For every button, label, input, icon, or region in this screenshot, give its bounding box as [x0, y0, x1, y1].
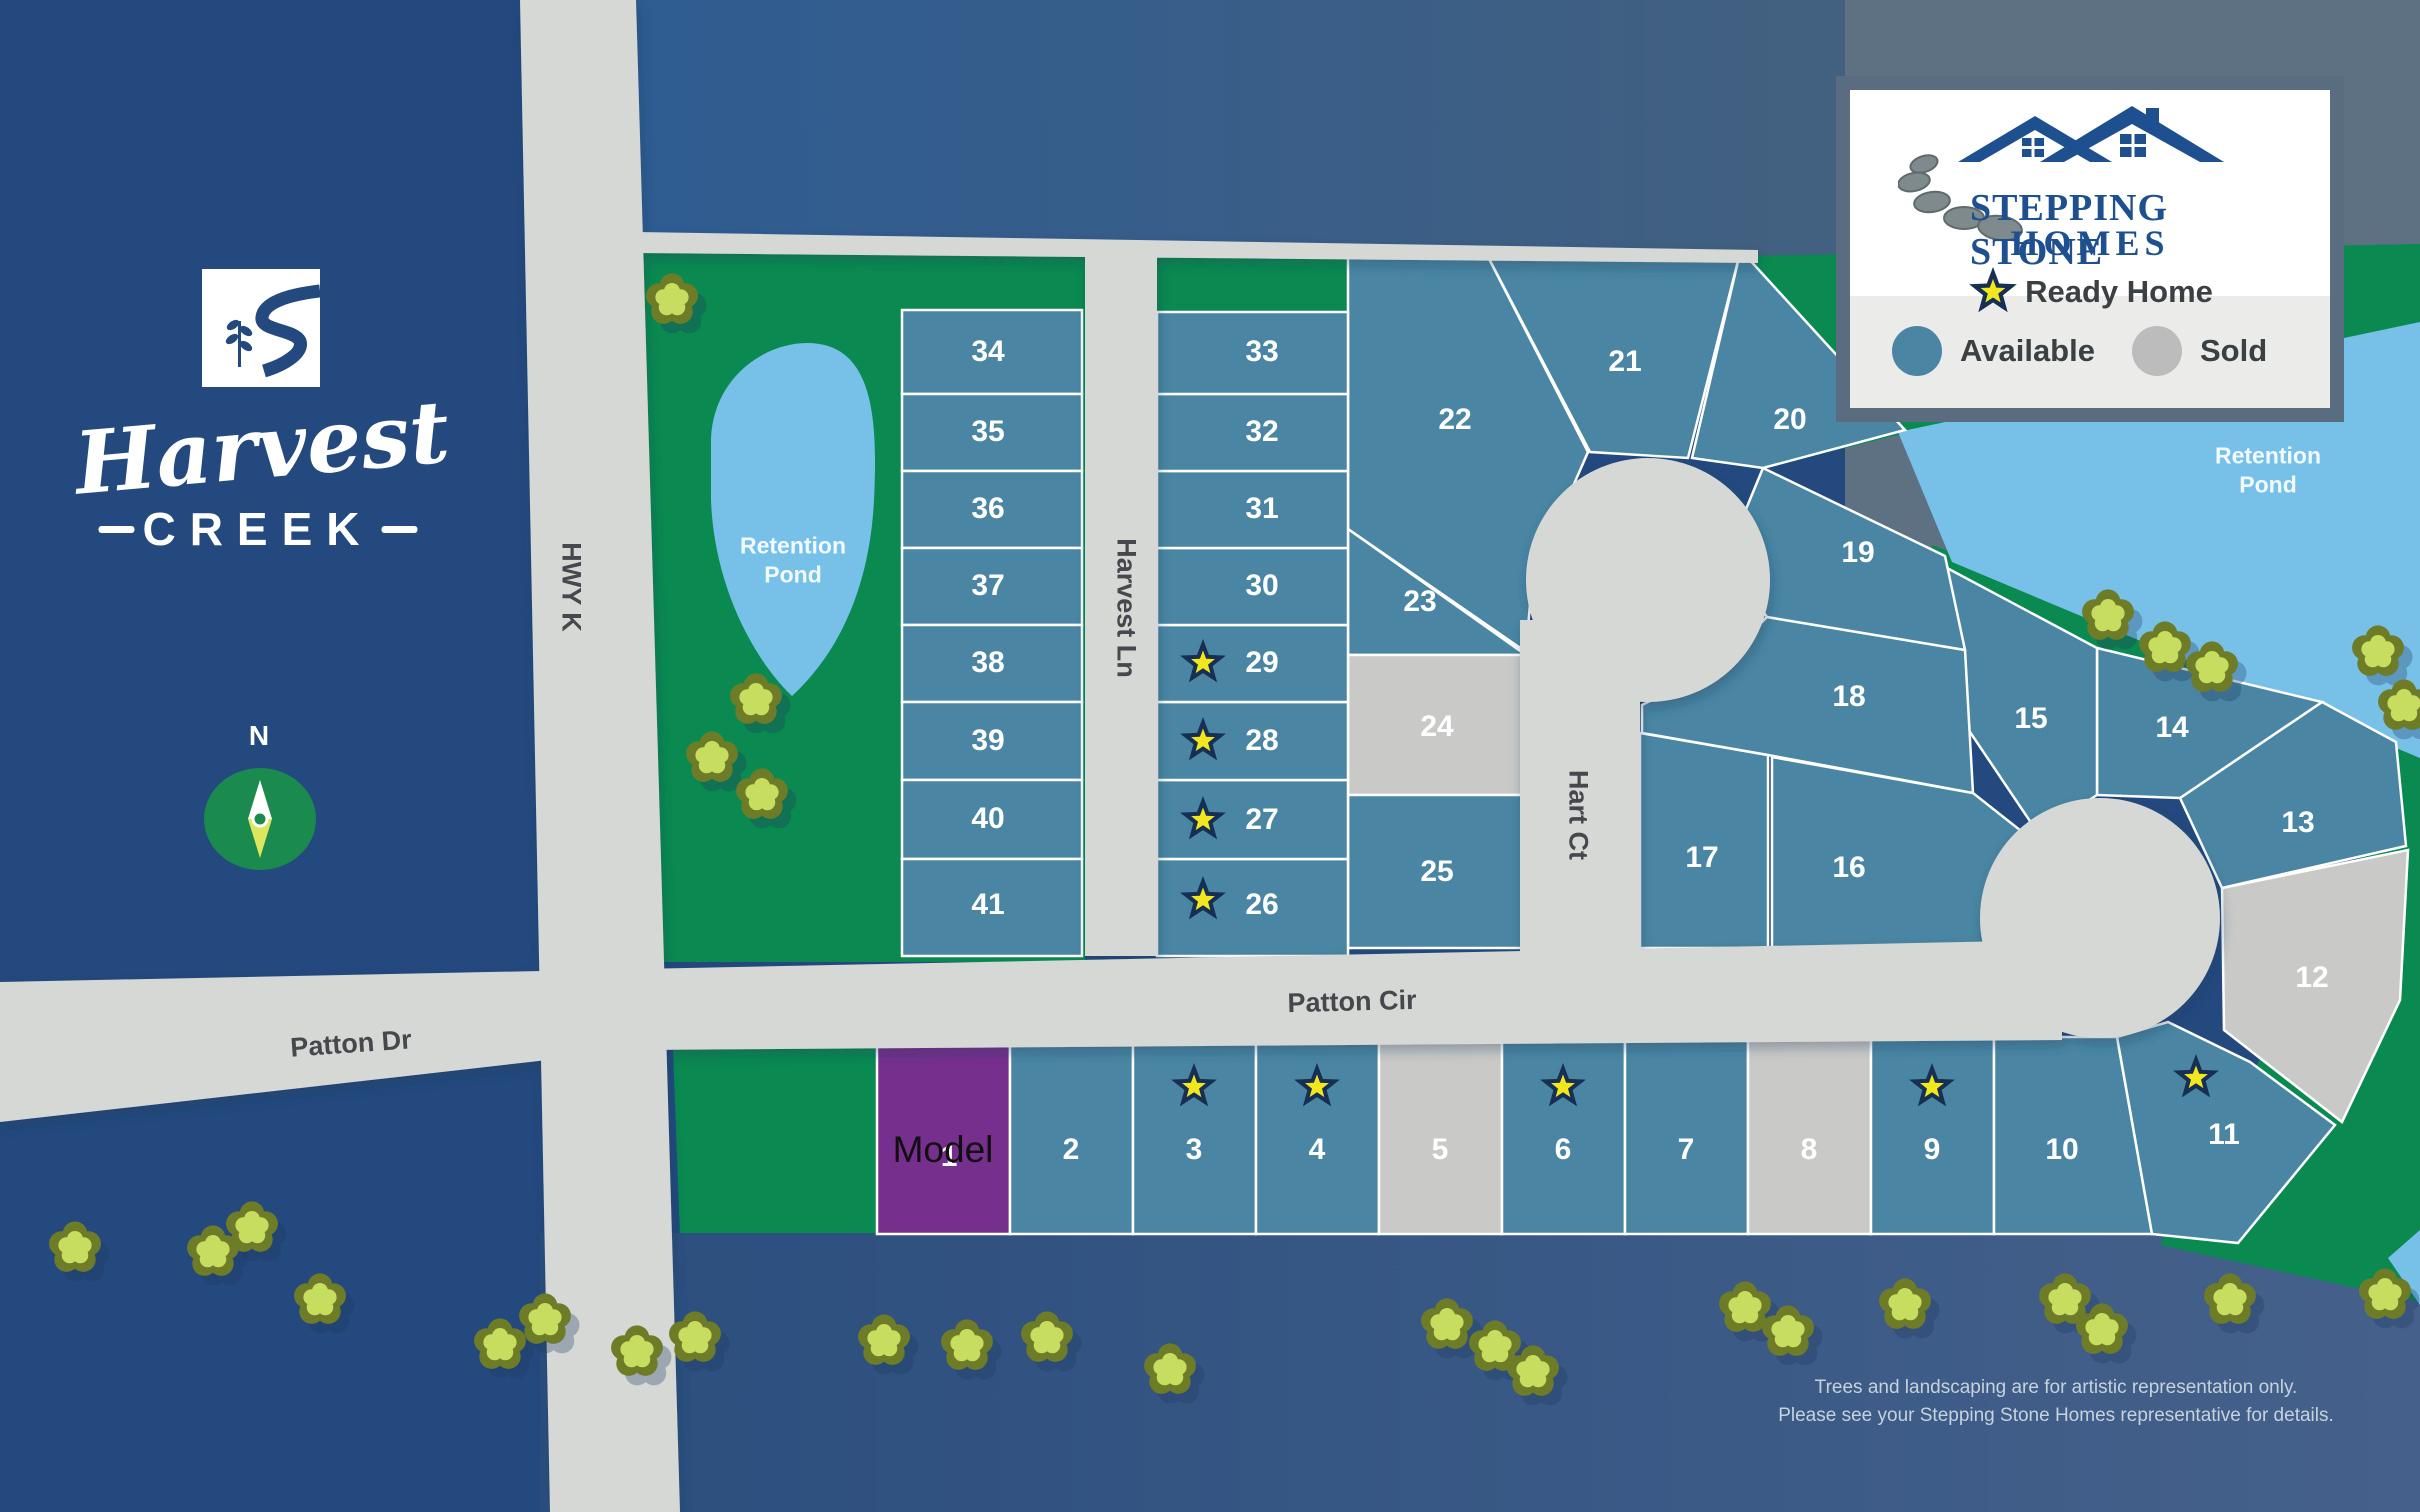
- sold-swatch-icon: [2132, 326, 2182, 376]
- lot-17-label: 17: [1685, 841, 1718, 875]
- decorative-dash-right: [382, 526, 418, 533]
- lot-14-label: 14: [2155, 711, 2188, 745]
- lot-37-label: 37: [971, 569, 1004, 603]
- lot-26-label: 26: [1245, 888, 1278, 922]
- ready-home-star-icon: [1967, 266, 2019, 318]
- lot-25-label: 25: [1420, 855, 1453, 889]
- road-hart-culdesac: [1526, 458, 1770, 702]
- legend-ready-home-row: Ready Home: [1850, 266, 2330, 318]
- community-name-caps: CREEK: [142, 502, 373, 556]
- lot-32-label: 32: [1245, 415, 1278, 449]
- lot-15-label: 15: [2014, 702, 2047, 736]
- available-swatch-icon: [1892, 326, 1942, 376]
- legend-sold-item: Sold: [2132, 326, 2267, 376]
- lot-20-label: 20: [1773, 403, 1806, 437]
- region-bottom-navy-band: [540, 1233, 2420, 1512]
- decorative-dash-left: [98, 526, 134, 533]
- lot-40-label: 40: [971, 802, 1004, 836]
- compass-icon: [203, 766, 317, 872]
- lot-38-label: 38: [971, 646, 1004, 680]
- lot-7-label: 7: [1678, 1133, 1695, 1167]
- lot-13-label: 13: [2281, 806, 2314, 840]
- lot-33-label: 33: [1245, 335, 1278, 369]
- lot-31-label: 31: [1245, 492, 1278, 526]
- lot-39-label: 39: [971, 724, 1004, 758]
- lot-18-label: 18: [1832, 680, 1865, 714]
- lot-29-label: 29: [1245, 646, 1278, 680]
- road-patton-culdesac: [1980, 798, 2220, 1038]
- road-label-hart-ct: Hart Ct: [1563, 770, 1594, 860]
- lot-19-label: 19: [1841, 536, 1874, 570]
- brand-name-line2: HOMES: [2010, 222, 2169, 264]
- lot-16-label: 16: [1832, 851, 1865, 885]
- lot-5-label: 5: [1432, 1133, 1449, 1167]
- lot-21-label: 21: [1608, 345, 1641, 379]
- green-strip-model: [673, 1046, 877, 1233]
- lot-27-label: 27: [1245, 803, 1278, 837]
- disclaimer-text: Trees and landscaping are for artistic r…: [1746, 1374, 2366, 1429]
- lot-8-label: 8: [1801, 1133, 1818, 1167]
- community-name-caps-row: CREEK: [90, 502, 425, 556]
- lot-30-label: 30: [1245, 569, 1278, 603]
- compass-north-label: N: [249, 720, 269, 752]
- region-top-blue-band: [610, 0, 1860, 256]
- lot-6-label: 6: [1555, 1133, 1572, 1167]
- lot-9-label: 9: [1924, 1133, 1941, 1167]
- site-map-page: { "community": { "name_script": "Harvest…: [0, 0, 2420, 1512]
- road-label-hwy-k: HWY K: [556, 542, 587, 632]
- available-label: Available: [1960, 333, 2095, 369]
- lot-23-label: 23: [1403, 585, 1436, 619]
- road-label-patton-cir: Patton Cir: [1287, 985, 1417, 1019]
- lot-34-label: 34: [971, 335, 1004, 369]
- lot-22-label: 22: [1438, 403, 1471, 437]
- region-left-navy-panel: [0, 0, 552, 1512]
- lot-28-label: 28: [1245, 724, 1278, 758]
- lot-10-label: 10: [2045, 1133, 2078, 1167]
- pond-label-west: Retention Pond: [718, 531, 868, 589]
- ready-home-label: Ready Home: [2025, 274, 2213, 310]
- disclaimer-line2: Please see your Stepping Stone Homes rep…: [1746, 1402, 2366, 1430]
- sold-label: Sold: [2200, 333, 2267, 369]
- lot-1-label: 1Model: [893, 1129, 994, 1171]
- legend-available-item: Available: [1892, 326, 2095, 376]
- road-label-harvest-ln: Harvest Ln: [1111, 538, 1142, 678]
- lot-11-label: 11: [2208, 1118, 2240, 1152]
- pond-label-east: Retention Pond: [2193, 441, 2343, 499]
- lot-2-label: 2: [1063, 1133, 1080, 1167]
- harvest-creek-logo-icon: [202, 269, 320, 387]
- model-home-label: Model: [893, 1129, 994, 1170]
- lot-36-label: 36: [971, 492, 1004, 526]
- lot-12-label: 12: [2295, 961, 2328, 995]
- green-strip-north: [1157, 250, 1348, 312]
- lot-41-label: 41: [971, 888, 1004, 922]
- disclaimer-line1: Trees and landscaping are for artistic r…: [1746, 1374, 2366, 1402]
- lot-24-label: 24: [1420, 710, 1453, 744]
- legend-panel: STEPPING STONE HOMES Ready Home Availabl…: [1836, 76, 2344, 422]
- lot-35-label: 35: [971, 415, 1004, 449]
- lot-3-label: 3: [1186, 1133, 1203, 1167]
- lot-4-label: 4: [1309, 1133, 1326, 1167]
